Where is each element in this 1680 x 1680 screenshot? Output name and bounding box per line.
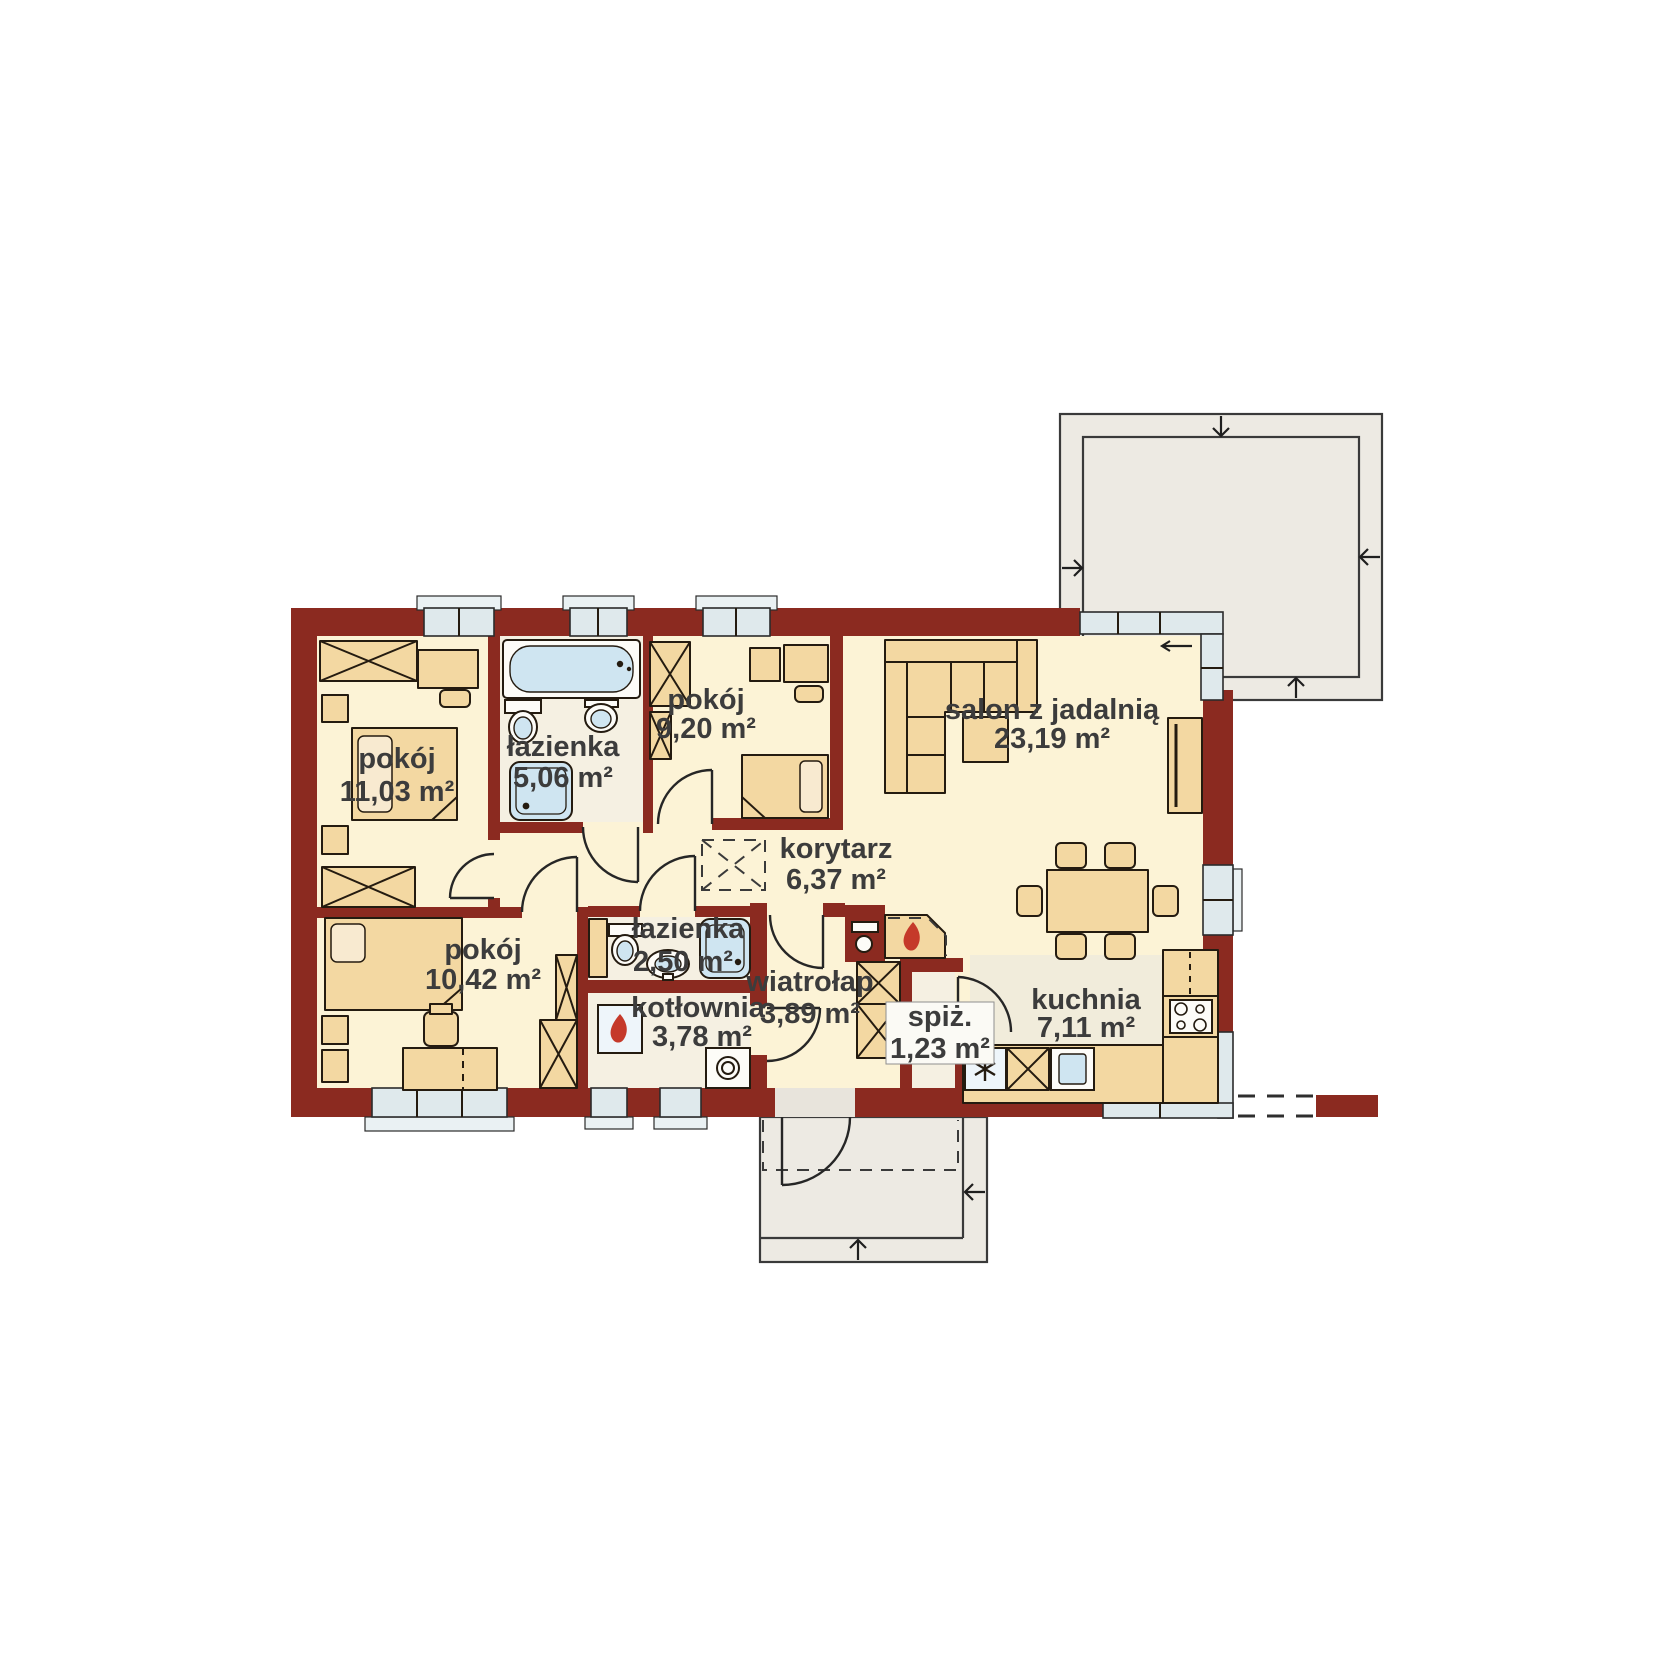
- nightstand: [322, 1016, 348, 1044]
- chimney-flue: [856, 936, 872, 952]
- dining-chair: [1105, 843, 1135, 868]
- bed: [742, 755, 828, 818]
- washbasin-icon: [585, 700, 618, 732]
- window-bedroom2: [696, 596, 777, 636]
- room-label-bathroom1: łazienka: [507, 731, 621, 763]
- wardrobe: [540, 1020, 577, 1088]
- entrance-porch: [760, 1117, 987, 1262]
- wardrobe: [320, 641, 417, 681]
- window-dining: [1203, 865, 1242, 935]
- desk: [418, 650, 478, 688]
- room-label-bedroom2: pokój: [667, 684, 744, 716]
- sink-icon: [1051, 1048, 1094, 1090]
- chest: [750, 648, 780, 681]
- bathtub-icon: [503, 640, 640, 698]
- tv-cabinet: [1168, 718, 1202, 813]
- dining-table: [1047, 870, 1148, 932]
- cabinet: [1007, 1048, 1049, 1090]
- dining-chair: [1056, 843, 1086, 868]
- nightstand: [322, 1050, 348, 1082]
- room-label-bathroom2: łazienka: [632, 913, 746, 945]
- hob-icon: [1170, 1000, 1212, 1033]
- desk: [784, 645, 828, 682]
- room-area-corridor: 6,37 m²: [786, 864, 886, 896]
- room-label-bedroom1: pokój: [358, 743, 435, 775]
- chimney-vent: [852, 922, 878, 932]
- room-label-pantry: spiż.: [908, 1001, 972, 1033]
- room-label-bedroom3: pokój: [444, 934, 521, 966]
- dining-chair: [1105, 934, 1135, 959]
- chair: [440, 690, 470, 707]
- nightstand: [322, 695, 348, 722]
- chimney: [845, 905, 885, 962]
- chair: [424, 1004, 458, 1046]
- room-area-kitchen: 7,11 m²: [1037, 1012, 1136, 1044]
- window-boiler-1: [585, 1088, 633, 1129]
- desk: [403, 1048, 497, 1090]
- dining-chair: [1017, 886, 1042, 916]
- boundary-marker: [1238, 1095, 1378, 1117]
- room-label-vestibule: wiatrołap: [745, 966, 873, 998]
- chair: [795, 686, 823, 702]
- room-label-corridor: korytarz: [780, 833, 893, 865]
- room-area-bathroom1: 5,06 m²: [513, 762, 613, 794]
- washing-machine-icon: [706, 1048, 750, 1088]
- wardrobe: [322, 867, 415, 907]
- window-boiler-2: [654, 1088, 707, 1129]
- wardrobe: [556, 955, 577, 1020]
- room-label-living: salon z jadalnią: [945, 694, 1160, 726]
- room-area-bedroom2: 9,20 m²: [656, 713, 756, 745]
- window-bathroom1: [563, 596, 634, 636]
- room-area-vestibule: 3,89 m²: [760, 998, 860, 1030]
- dining-chair: [1153, 886, 1178, 916]
- room-area-bathroom2: 2,50 m²: [633, 946, 733, 978]
- floor-plan-page: pokój 11,03 m² łazienka 5,06 m² pokój 9,…: [0, 0, 1680, 1680]
- room-area-pantry: 1,23 m²: [890, 1033, 990, 1065]
- dining-chair: [1056, 934, 1086, 959]
- nightstand: [322, 826, 348, 854]
- window-bedroom3: [365, 1088, 514, 1131]
- room-area-bedroom1: 11,03 m²: [340, 776, 455, 808]
- cabinet: [589, 919, 607, 977]
- room-area-boiler: 3,78 m²: [652, 1021, 752, 1053]
- window-bedroom1: [417, 596, 501, 636]
- room-area-bedroom3: 10,42 m²: [425, 964, 541, 996]
- room-area-living: 23,19 m²: [994, 723, 1110, 755]
- floor-plan-drawing: pokój 11,03 m² łazienka 5,06 m² pokój 9,…: [0, 0, 1680, 1680]
